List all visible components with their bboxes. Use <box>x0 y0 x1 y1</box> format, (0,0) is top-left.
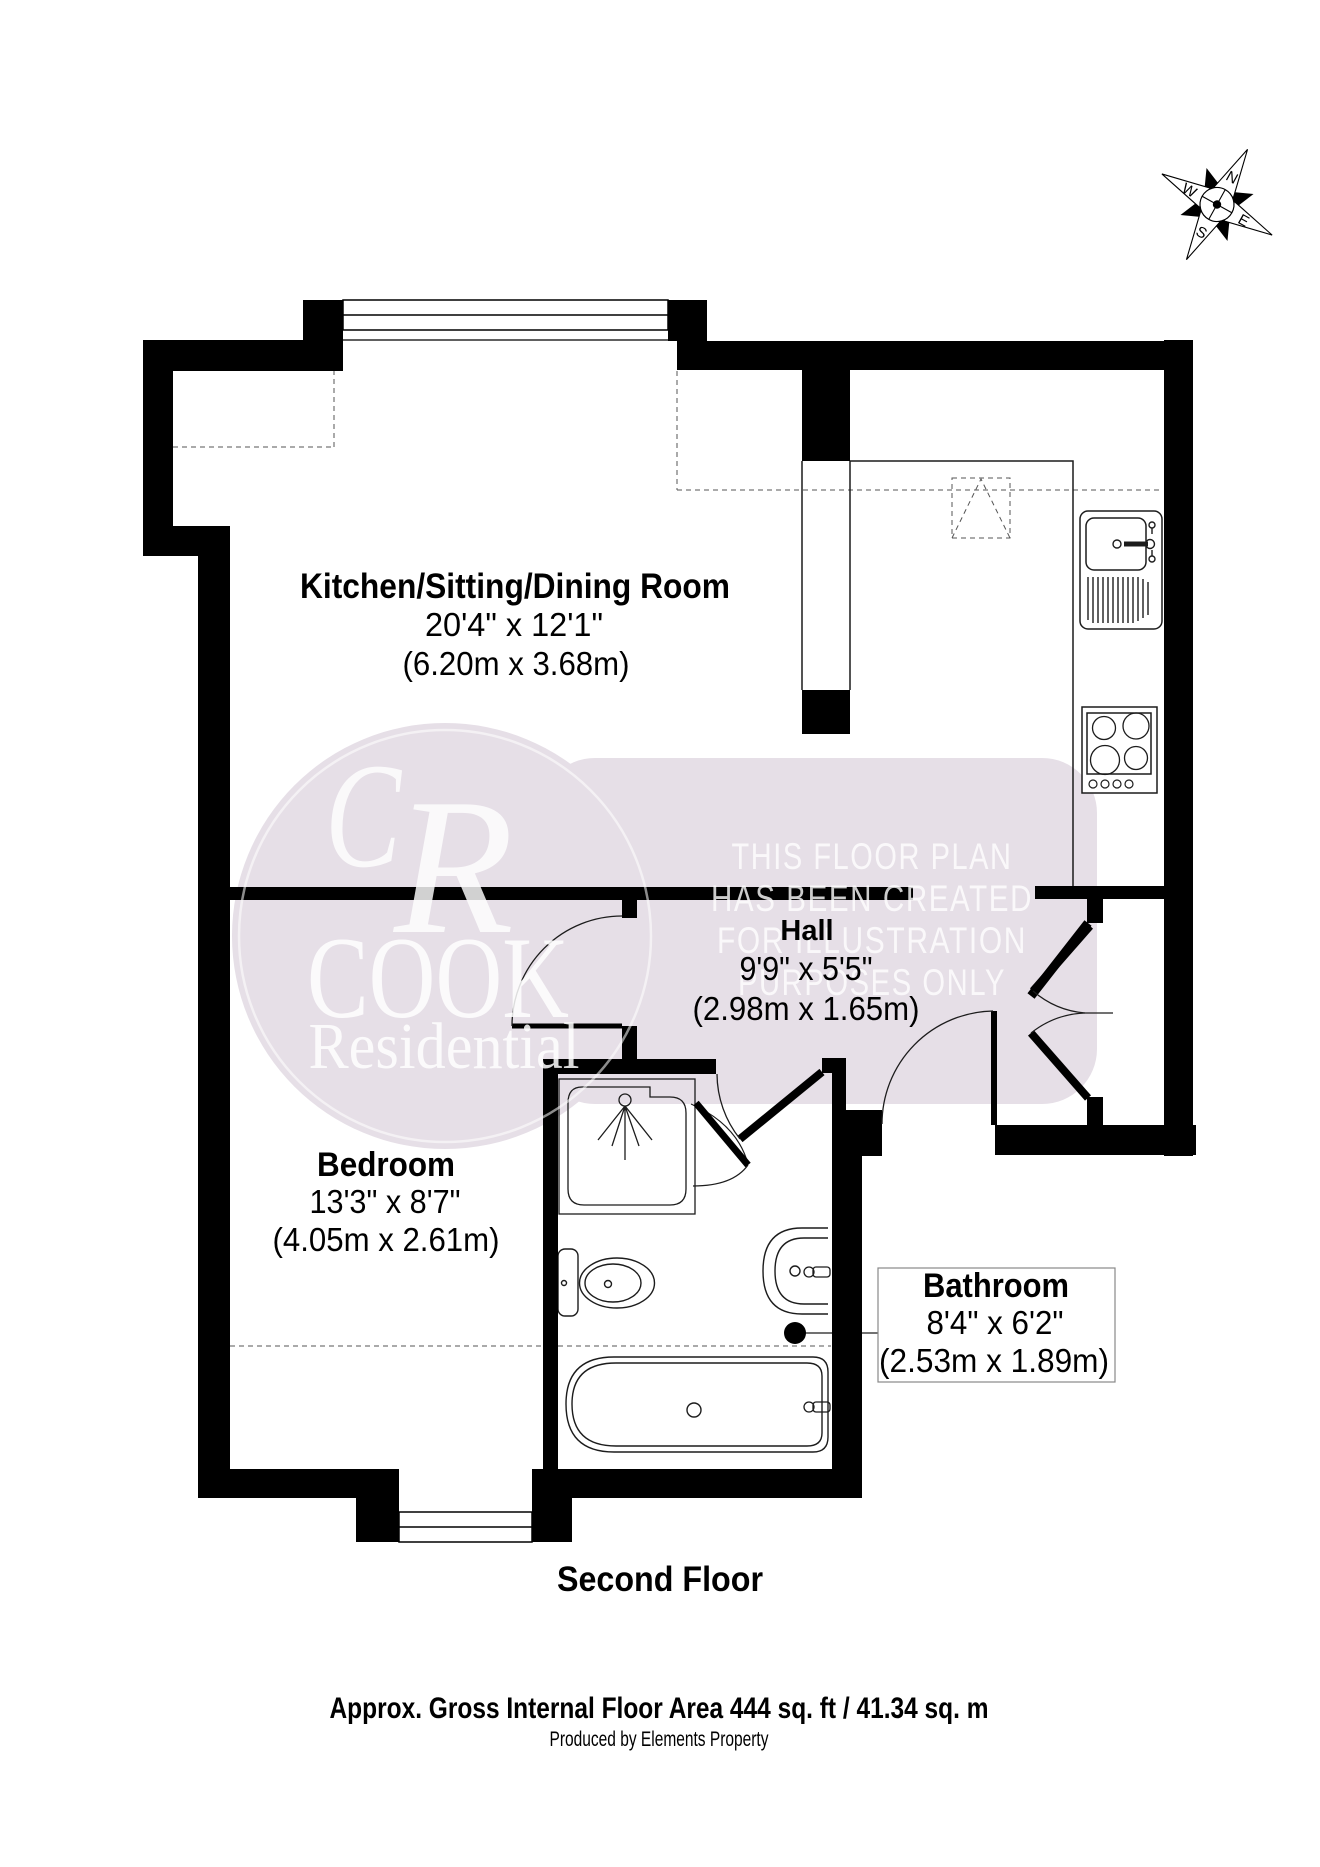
svg-text:(4.05m x 2.61m): (4.05m x 2.61m) <box>273 1221 500 1258</box>
svg-text:THIS FLOOR PLAN: THIS FLOOR PLAN <box>732 836 1013 877</box>
svg-text:(2.98m x 1.65m): (2.98m x 1.65m) <box>693 990 920 1027</box>
svg-text:(2.53m x 1.89m): (2.53m x 1.89m) <box>879 1342 1109 1379</box>
svg-text:HAS BEEN CREATED: HAS BEEN CREATED <box>711 878 1033 919</box>
svg-text:C: C <box>325 733 402 899</box>
svg-text:8'4" x 6'2": 8'4" x 6'2" <box>927 1304 1064 1341</box>
svg-text:Second Floor: Second Floor <box>557 1560 763 1599</box>
svg-text:Approx. Gross Internal Floor A: Approx. Gross Internal Floor Area 444 sq… <box>330 1692 989 1725</box>
svg-text:13'3" x 8'7": 13'3" x 8'7" <box>310 1183 461 1220</box>
svg-text:Kitchen/Sitting/Dining Room: Kitchen/Sitting/Dining Room <box>300 567 730 606</box>
svg-text:20'4" x 12'1": 20'4" x 12'1" <box>425 606 603 643</box>
svg-text:(6.20m x 3.68m): (6.20m x 3.68m) <box>403 645 630 682</box>
svg-text:Residential: Residential <box>309 1010 580 1083</box>
svg-text:Bedroom: Bedroom <box>317 1146 455 1184</box>
svg-text:9'9" x 5'5": 9'9" x 5'5" <box>740 950 873 987</box>
svg-text:Bathroom: Bathroom <box>923 1267 1069 1305</box>
svg-text:Produced by Elements Property: Produced by Elements Property <box>550 1728 769 1751</box>
svg-text:Hall: Hall <box>780 915 833 947</box>
